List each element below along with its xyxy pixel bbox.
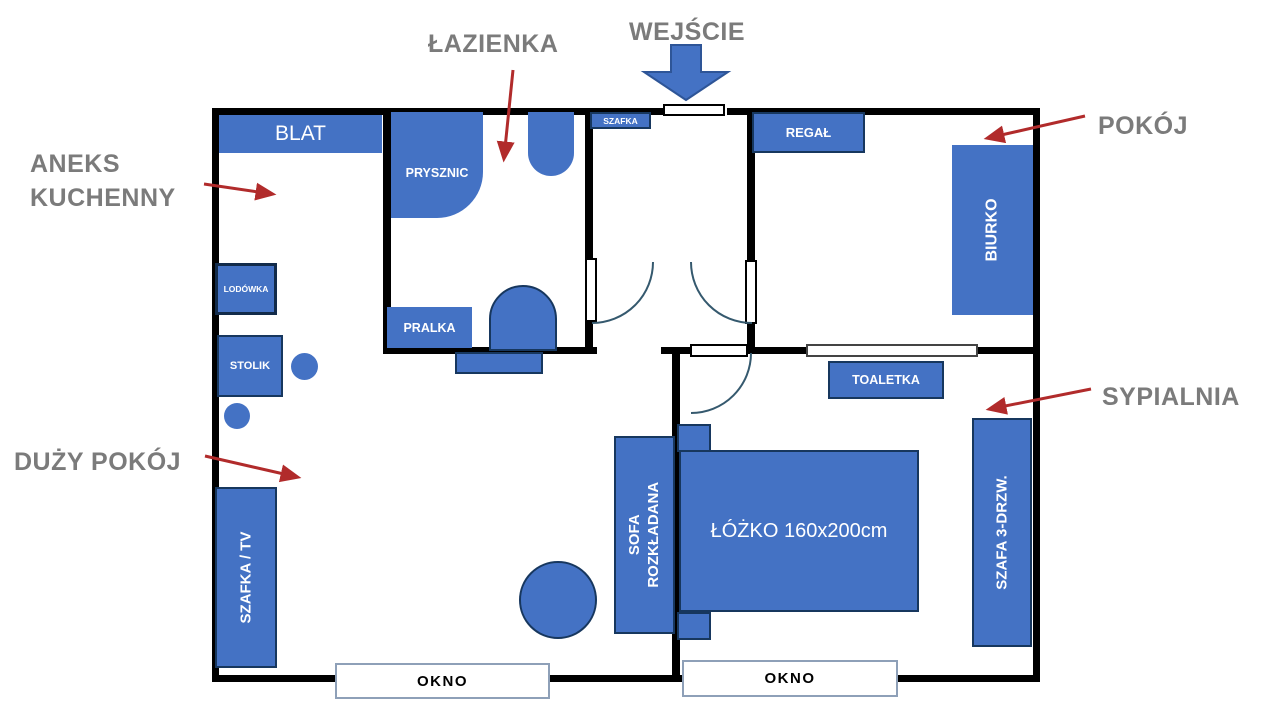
label-duzy-pokoj: DUŻY POKÓJ (14, 446, 181, 480)
furniture-bed: ŁÓŻKO 160x200cm (679, 450, 919, 612)
label-pokoj: POKÓJ (1098, 110, 1188, 144)
bedroom-door-leaf (690, 344, 748, 357)
desk-label: BIURKO (983, 198, 1001, 261)
furniture-wardrobe: SZAFA 3-DRZW. (972, 418, 1032, 647)
toilet-base (455, 352, 543, 374)
furniture-desk: BIURKO (952, 145, 1033, 315)
floor-plan: BLAT LODÓWKA STOLIK PRYSZNIC PRALKA SZAF… (0, 0, 1271, 720)
bathroom-door-leaf (585, 258, 597, 322)
window-bedroom: OKNO (682, 660, 898, 697)
label-wejscie: WEJŚCIE (629, 16, 745, 50)
wall-right (1033, 108, 1040, 682)
nightstand-top (677, 424, 711, 452)
furniture-countertop: BLAT (219, 115, 382, 153)
room-door-arc (691, 262, 752, 323)
window-living-room: OKNO (335, 663, 550, 699)
tv-cabinet-label: SZAFKA / TV (238, 532, 255, 624)
arrow-sypialnia (990, 389, 1091, 409)
shower-label: PRYSZNIC (406, 166, 469, 180)
sofa-label: SOFA ROZKŁADANA (626, 482, 664, 588)
label-sypialnia: SYPIALNIA (1102, 381, 1240, 415)
furniture-shelf-unit: REGAŁ (752, 112, 865, 153)
label-aneks-kuchenny: ANEKS KUCHENNY (30, 148, 176, 216)
label-lazienka: ŁAZIENKA (428, 28, 558, 62)
chair-below-table (224, 403, 250, 429)
bedroom-door-arc (691, 353, 751, 413)
window-bedroom-label: OKNO (765, 670, 816, 687)
furniture-fridge: LODÓWKA (215, 263, 277, 315)
label-aneks-line2: KUCHENNY (30, 182, 176, 216)
small-table-label: STOLIK (230, 360, 270, 372)
washing-machine-label: PRALKA (403, 321, 455, 335)
label-aneks-line1: ANEKS (30, 148, 176, 182)
dressing-table-label: TOALETKA (852, 373, 920, 387)
bed-label: ŁÓŻKO 160x200cm (711, 520, 888, 543)
furniture-shower: PRYSZNIC (391, 112, 483, 218)
furniture-washing-machine: PRALKA (387, 307, 472, 348)
sofa-label-line1: SOFA (626, 482, 645, 588)
wardrobe-label: SZAFA 3-DRZW. (994, 475, 1011, 589)
round-table (519, 561, 597, 639)
shelf-unit-label: REGAŁ (786, 125, 832, 140)
furniture-sofa: SOFA ROZKŁADANA (614, 436, 675, 634)
entrance-door-leaf (663, 104, 725, 116)
furniture-hall-cabinet: SZAFKA (590, 112, 651, 129)
fridge-label: LODÓWKA (224, 284, 269, 294)
furniture-dressing-table: TOALETKA (828, 361, 944, 399)
toilet-bowl (489, 285, 557, 351)
entrance-arrow-icon (644, 45, 728, 100)
furniture-tv-cabinet: SZAFKA / TV (215, 487, 277, 668)
bathroom-sink (528, 112, 574, 176)
chair-right-of-table (291, 353, 318, 380)
countertop-label: BLAT (275, 122, 326, 146)
interior-window-pass (806, 344, 978, 357)
room-door-leaf (745, 260, 757, 324)
furniture-small-table: STOLIK (217, 335, 283, 397)
nightstand-bottom (677, 612, 711, 640)
hall-cabinet-label: SZAFKA (603, 116, 637, 126)
wall-hall-left-upper (585, 112, 593, 260)
sofa-label-line2: ROZKŁADANA (645, 482, 664, 588)
window-living-room-label: OKNO (417, 673, 468, 690)
bathroom-door-arc (592, 262, 653, 323)
